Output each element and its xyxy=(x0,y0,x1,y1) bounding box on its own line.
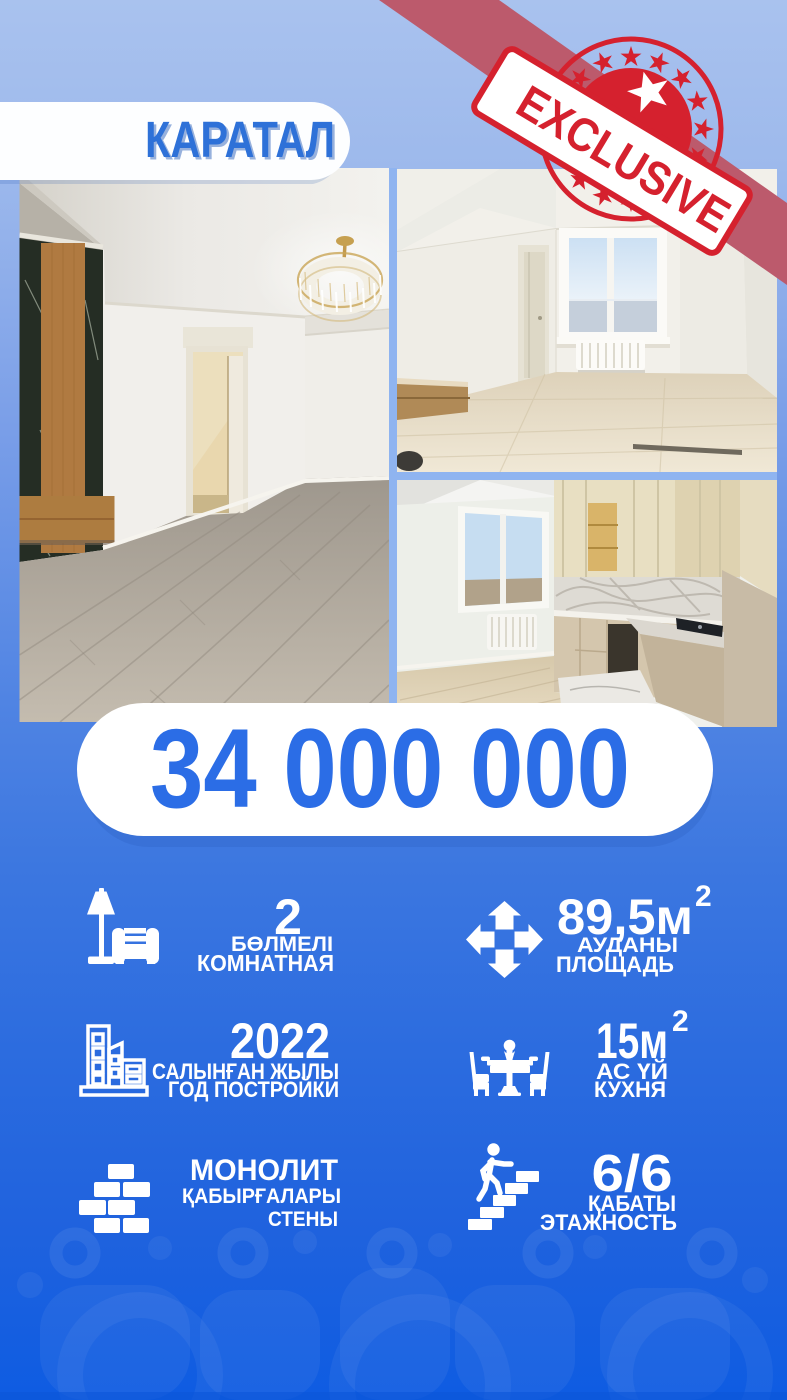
svg-text:СТЕНЫ: СТЕНЫ xyxy=(268,1208,338,1231)
svg-text:2: 2 xyxy=(695,880,712,913)
svg-text:ЭТАЖНОСТЬ: ЭТАЖНОСТЬ xyxy=(540,1210,677,1235)
svg-text:34 000 000: 34 000 000 xyxy=(150,706,630,831)
svg-text:ҚАБЫРҒАЛАРЫ: ҚАБЫРҒАЛАРЫ xyxy=(182,1185,341,1208)
svg-text:2: 2 xyxy=(672,1005,689,1038)
svg-text:КУХНЯ: КУХНЯ xyxy=(594,1077,666,1102)
svg-text:МОНОЛИТ: МОНОЛИТ xyxy=(190,1154,338,1187)
svg-text:КОМНАТНАЯ: КОМНАТНАЯ xyxy=(197,950,334,976)
svg-text:КАРАТАЛ: КАРАТАЛ xyxy=(145,111,335,168)
svg-text:ПЛОЩАДЬ: ПЛОЩАДЬ xyxy=(556,952,674,977)
svg-text:ГОД ПОСТРОЙКИ: ГОД ПОСТРОЙКИ xyxy=(168,1077,339,1102)
